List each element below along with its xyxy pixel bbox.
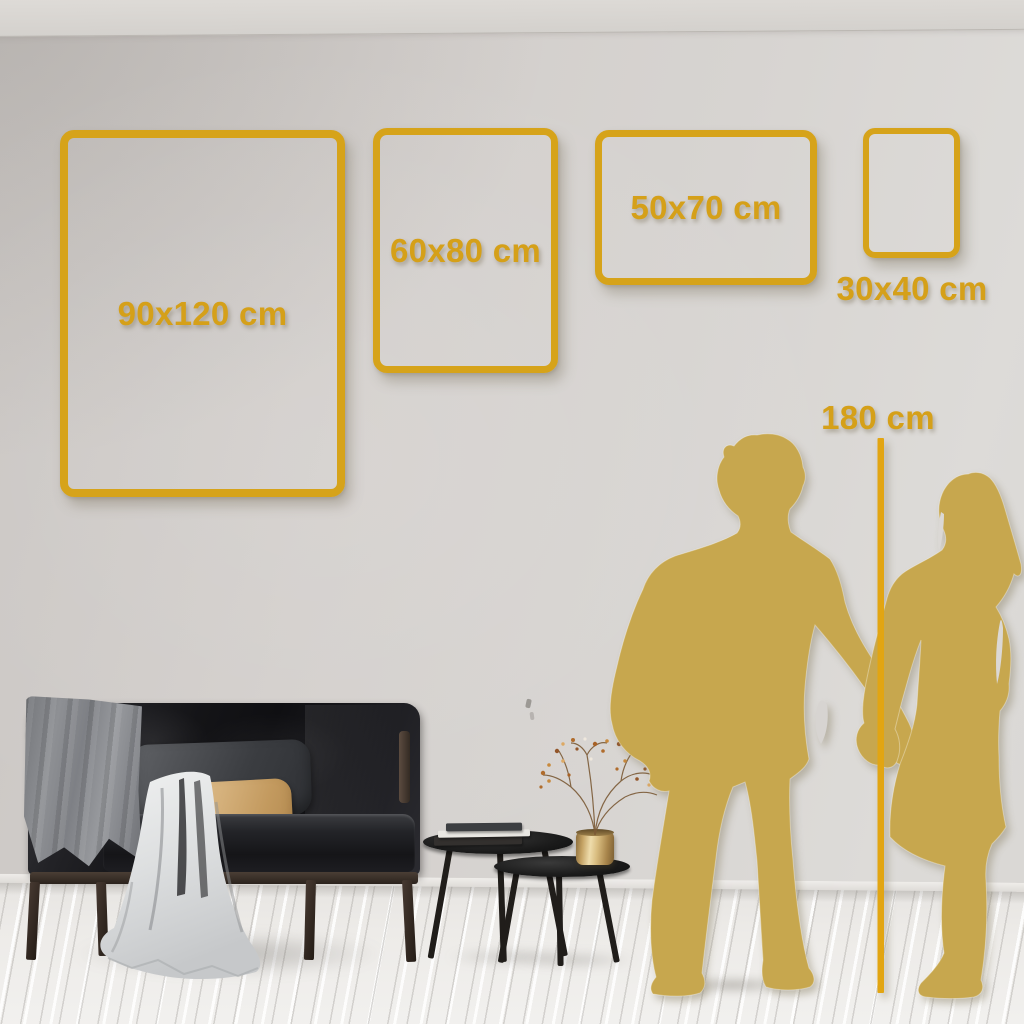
couple-silhouette-group: [0, 0, 1024, 1024]
height-line: [878, 438, 885, 993]
man-arm-gap: [816, 701, 828, 745]
woman-hair-gap: [938, 512, 944, 552]
size-guide-scene: 90x120 cm 60x80 cm 50x70 cm 30x40 cm 180…: [0, 0, 1024, 1024]
